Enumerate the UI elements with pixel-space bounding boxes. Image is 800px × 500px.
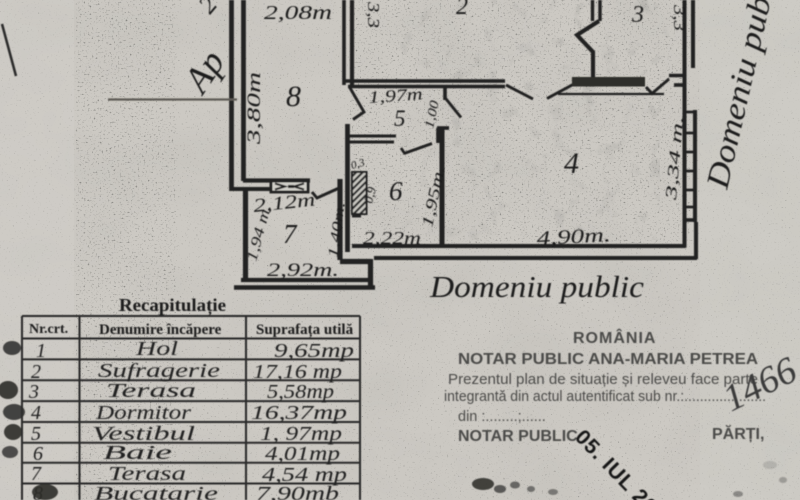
svg-text:4,90m.: 4,90m. [536,224,611,250]
svg-text:3: 3 [631,2,644,28]
svg-text:1,97m: 1,97m [368,84,423,107]
svg-text:3: 3 [28,381,39,403]
svg-text:Hol: Hol [135,338,179,360]
svg-text:2,08m: 2,08m [264,2,332,24]
svg-text:3,3: 3,3 [364,1,383,28]
svg-text:2,92m.: 2,92m. [267,260,339,281]
svg-text:2: 2 [456,0,468,20]
svg-text:ROMÂNIA: ROMÂNIA [573,328,656,347]
svg-text:Dormitor: Dormitor [95,402,192,424]
svg-text:4: 4 [31,402,41,424]
svg-text:1, 97mp: 1, 97mp [260,423,342,445]
svg-text:Recapitulație: Recapitulație [119,295,226,316]
svg-text:2: 2 [31,361,41,383]
svg-text:8: 8 [286,80,301,113]
svg-text:Nr.crt.: Nr.crt. [29,322,68,337]
svg-text:1: 1 [36,340,46,362]
svg-text:3,80m: 3,80m [244,72,265,146]
svg-text:Domeniu public: Domeniu public [429,269,644,304]
svg-text:6: 6 [389,176,403,206]
svg-text:Suprafața utilă: Suprafața utilă [256,322,354,338]
svg-text:Denumire încăpere: Denumire încăpere [99,322,222,338]
svg-text:NOTAR PUBLIC: NOTAR PUBLIC [458,428,578,445]
svg-text:6: 6 [33,443,43,465]
svg-text:din :........;......: din :........;...... [458,409,546,425]
svg-text:5,58mp: 5,58mp [267,381,334,403]
svg-text:7: 7 [31,463,42,485]
svg-text:4: 4 [564,147,579,180]
svg-text:5: 5 [31,423,41,445]
svg-text:2,22m: 2,22m [363,228,421,248]
svg-text:9,65mp: 9,65mp [274,340,354,362]
svg-text:PĂRȚI,: PĂRȚI, [712,424,764,443]
svg-text:7,90mb: 7,90mb [256,483,339,500]
svg-text:Prezentul plan de situație și: Prezentul plan de situație și releveu fa… [448,372,758,388]
svg-text:Terasa: Terasa [106,380,196,402]
svg-text:NOTAR PUBLIC ANA-MARIA PETREA: NOTAR PUBLIC ANA-MARIA PETREA [458,351,758,368]
svg-text:Terasa: Terasa [108,463,186,485]
svg-text:17,16 mp: 17,16 mp [253,361,342,383]
svg-text:7: 7 [283,219,298,249]
svg-text:5: 5 [394,106,406,131]
svg-text:16,37mp: 16,37mp [251,402,347,424]
svg-text:3,3: 3,3 [670,4,689,31]
svg-text:integrantă din actul autentifi: integrantă din actul autentificat sub nr… [444,389,766,405]
svg-text:Baie: Baie [103,442,172,464]
svg-text:4,01mp: 4,01mp [265,443,340,465]
svg-text:Bucatarie: Bucatarie [94,483,218,500]
svg-text:Sufragerie: Sufragerie [98,360,220,382]
